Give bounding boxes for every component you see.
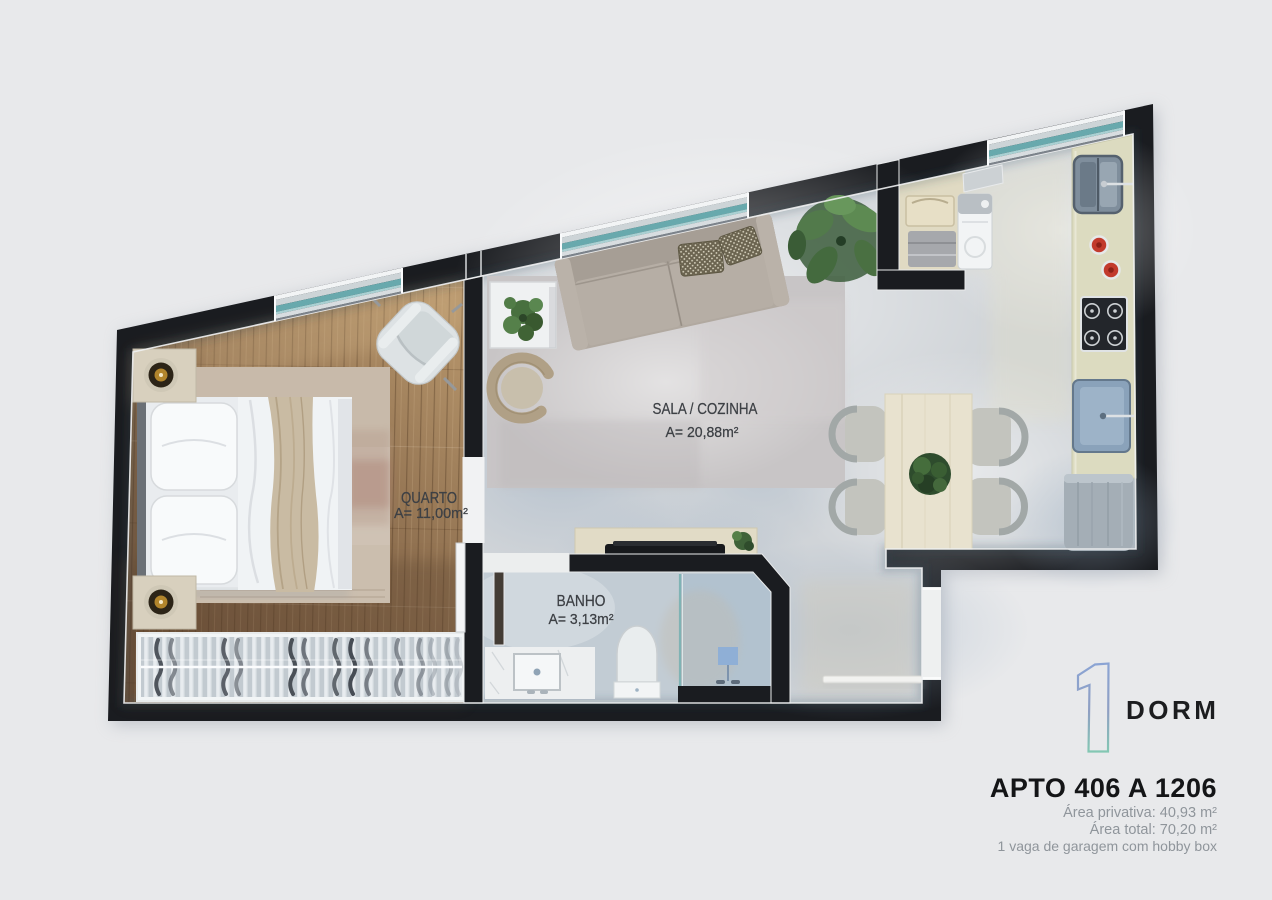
svg-text:Área privativa: 40,93 m²: Área privativa: 40,93 m² [1063, 804, 1217, 821]
svg-text:QUARTO: QUARTO [401, 490, 457, 507]
svg-text:A= 3,13m²: A= 3,13m² [549, 612, 614, 628]
svg-text:A= 11,00m²: A= 11,00m² [394, 506, 468, 522]
svg-text:SALA / COZINHA: SALA / COZINHA [653, 401, 758, 418]
svg-text:APTO 406 A 1206: APTO 406 A 1206 [990, 773, 1217, 803]
svg-text:1 vaga de garagem com hobby bo: 1 vaga de garagem com hobby box [998, 838, 1217, 854]
svg-text:A= 20,88m²: A= 20,88m² [666, 425, 739, 441]
svg-text:Área total: 70,20 m²: Área total: 70,20 m² [1090, 821, 1218, 838]
svg-text:DORM: DORM [1126, 695, 1219, 725]
svg-text:BANHO: BANHO [557, 593, 606, 610]
